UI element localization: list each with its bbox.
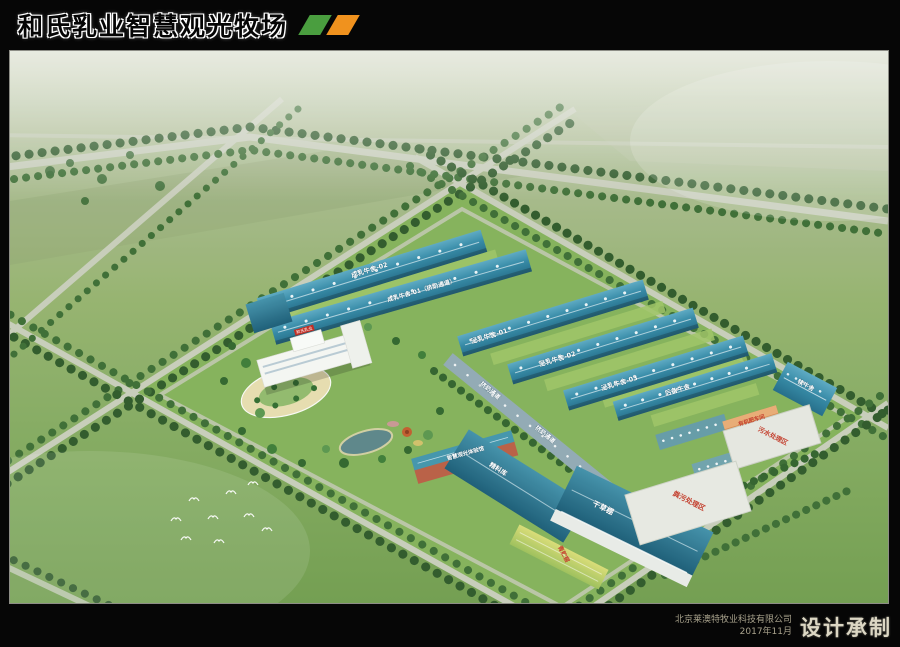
credit-label: 设计承制 — [800, 612, 892, 642]
company-name: 北京莱澳特牧业科技有限公司 — [675, 615, 792, 627]
page-title: 和氏乳业智慧观光牧场 — [18, 7, 288, 43]
design-date: 2017年11月 — [740, 627, 792, 639]
brand-logo — [304, 15, 354, 35]
haze-overall — [10, 51, 888, 603]
logo-stripe-orange-icon — [326, 15, 360, 35]
presentation-board: 和氏乳业智慧观光牧场 — [0, 0, 900, 647]
rendering-frame: 和氏乳业 — [9, 50, 889, 604]
farm-aerial-rendering: 和氏乳业 — [10, 51, 888, 603]
credits-bar: 北京莱澳特牧业科技有限公司 2017年11月 设计承制 — [675, 612, 892, 642]
design-credits: 北京莱澳特牧业科技有限公司 2017年11月 — [675, 615, 792, 638]
title-bar: 和氏乳业智慧观光牧场 — [0, 0, 900, 50]
